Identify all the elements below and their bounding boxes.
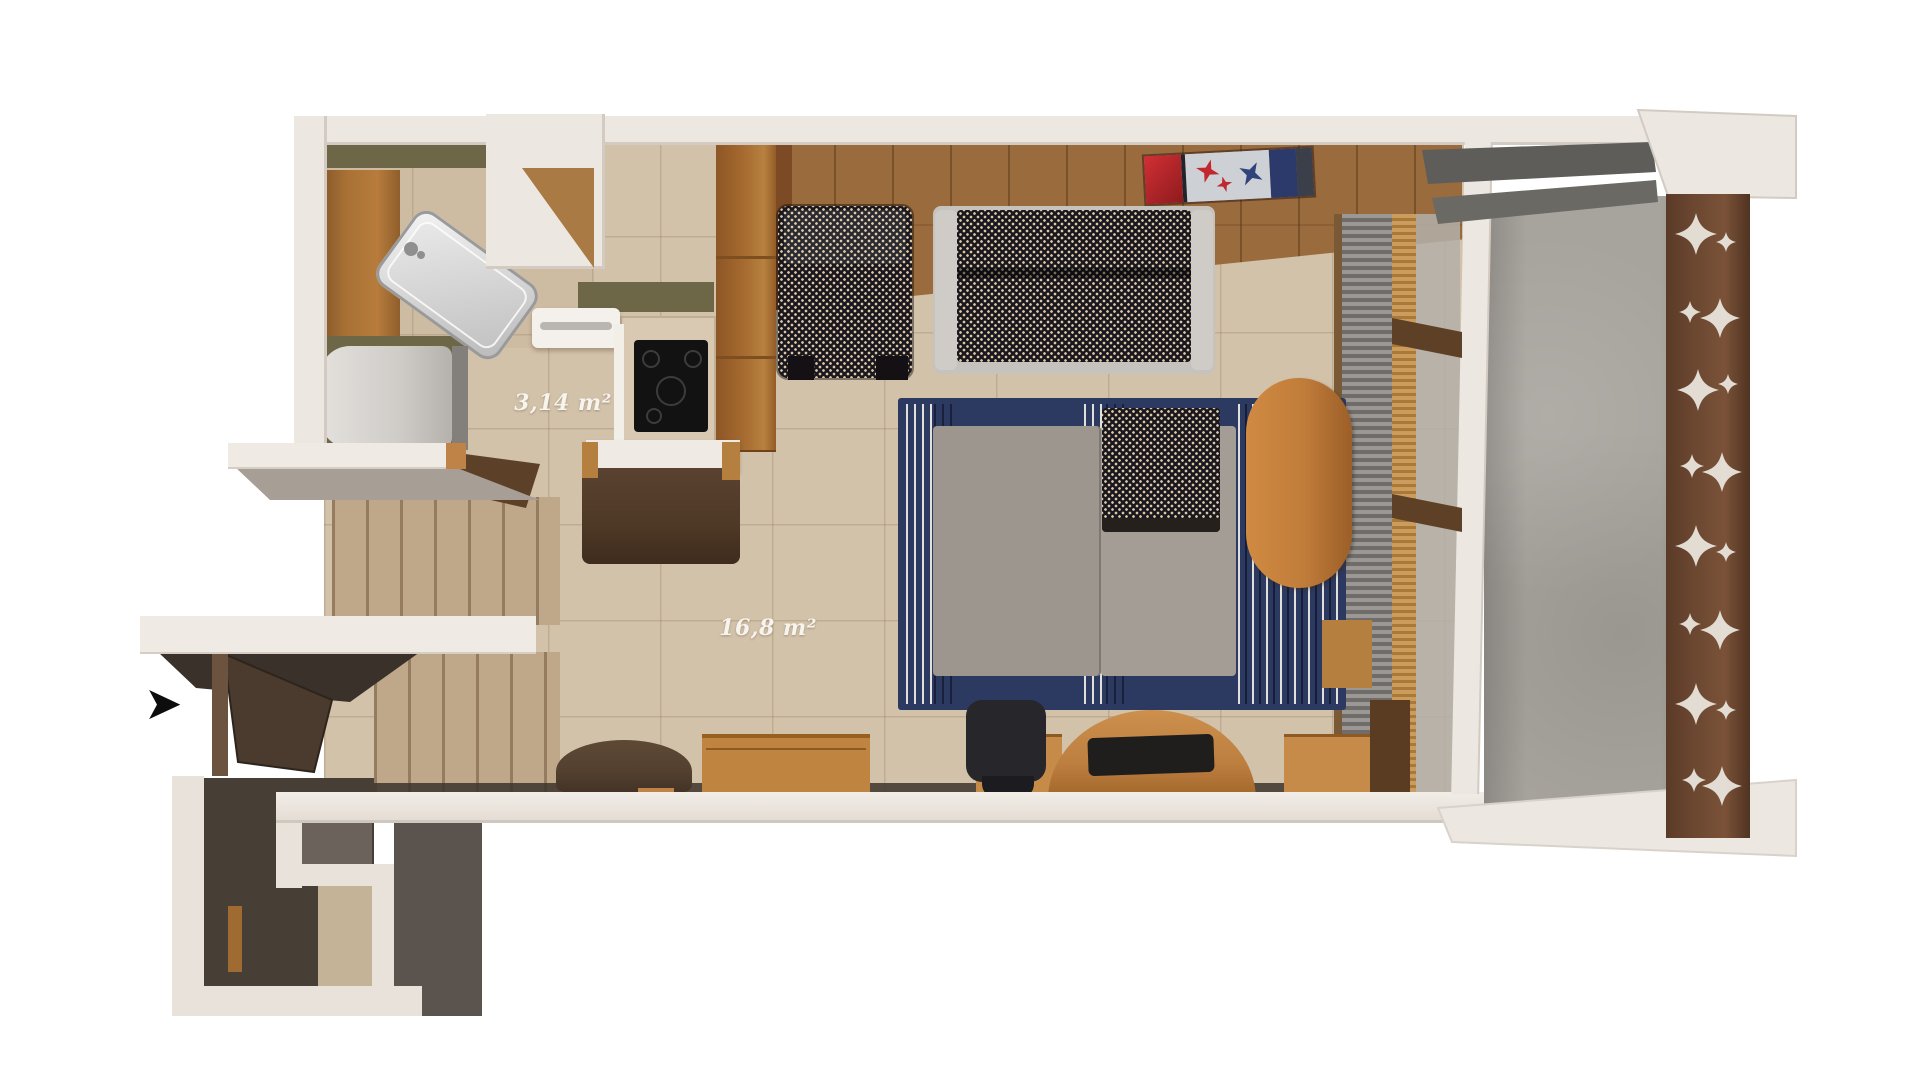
vestibule-wall (172, 776, 204, 1016)
chest-lid-line (706, 748, 866, 750)
kilim-center-panel (1181, 150, 1271, 203)
oval-coffee-table (1246, 378, 1352, 588)
entry-door-post (212, 648, 228, 776)
burner-icon (642, 350, 660, 368)
sofa-armrest (1191, 210, 1213, 370)
sofa-armrest (935, 210, 957, 370)
towel-rail-icon (540, 322, 612, 330)
kilim-leaf-motif (1193, 156, 1222, 185)
bottom-wall (276, 792, 1484, 823)
burner-icon (684, 350, 702, 368)
laptop (1087, 734, 1214, 776)
kitchen-island-side (722, 442, 740, 480)
kilim-red-panel (1144, 154, 1184, 204)
cabinet-panel-line (716, 356, 776, 359)
desk-side-cabinet (1284, 734, 1370, 800)
vestibule-floor-tile (318, 886, 372, 986)
decorative-screen (1666, 194, 1750, 838)
folded-blanket (1102, 408, 1220, 532)
main-area-label: 16,8 m² (698, 615, 838, 641)
vestibule-gray-notch (302, 818, 372, 864)
bath-faucet-icon (404, 242, 418, 256)
kilim-rug (1144, 148, 1314, 205)
entrance-arrow-icon: ➤ (144, 680, 183, 726)
screen-motifs (1666, 194, 1750, 838)
burner-icon (656, 376, 686, 406)
kilim-splash-motif (1234, 156, 1269, 191)
side-wood-box (1322, 620, 1372, 688)
floor-plan: 3,14 m² 16,8 m² ➤ (0, 0, 1920, 1080)
bathroom-area-label: 3,14 m² (498, 390, 628, 416)
vestibule-wall (172, 986, 422, 1016)
washing-machine (320, 346, 452, 448)
armchair-back-cushion (784, 210, 906, 264)
kilim-leaf-motif (1215, 174, 1235, 194)
armchair-foot (876, 356, 908, 380)
armchair-foot (788, 356, 814, 380)
dark-wood-strip (1370, 700, 1410, 792)
vestibule-wood-rail (228, 906, 242, 972)
wall-niche (486, 114, 605, 269)
staircase-lower-flight (374, 652, 560, 792)
storage-chest (702, 734, 870, 800)
armchair (778, 206, 912, 378)
staircase-upper-flight (332, 497, 560, 625)
kilim-navy-panel (1269, 148, 1299, 197)
entry-door-open (224, 654, 332, 772)
kitchen-counter-edge (614, 324, 624, 442)
kilim-gray-panel (1296, 148, 1314, 197)
floor-mattress (933, 426, 1101, 676)
kitchen-tall-cabinet (716, 138, 776, 452)
ledge-wood-block (446, 443, 466, 469)
washing-machine-side (452, 346, 468, 450)
left-wall (294, 116, 327, 448)
desk-chair (966, 700, 1046, 782)
cooktop (634, 340, 708, 432)
blanket-fold-edge (1102, 518, 1220, 532)
lower-wall-ledge (140, 616, 536, 654)
cabinet-panel-line (716, 256, 776, 259)
kitchen-island-side (582, 442, 598, 478)
sofa-upholstery (957, 210, 1191, 362)
upper-wall-ledge (228, 443, 460, 469)
vestibule-wall (372, 864, 394, 990)
bed-rug-stripes (906, 404, 932, 704)
kitchen-island-body (582, 468, 740, 564)
towel-shelf (532, 308, 620, 348)
sofa-backrest-fold (957, 268, 1191, 278)
burner-icon (646, 408, 662, 424)
